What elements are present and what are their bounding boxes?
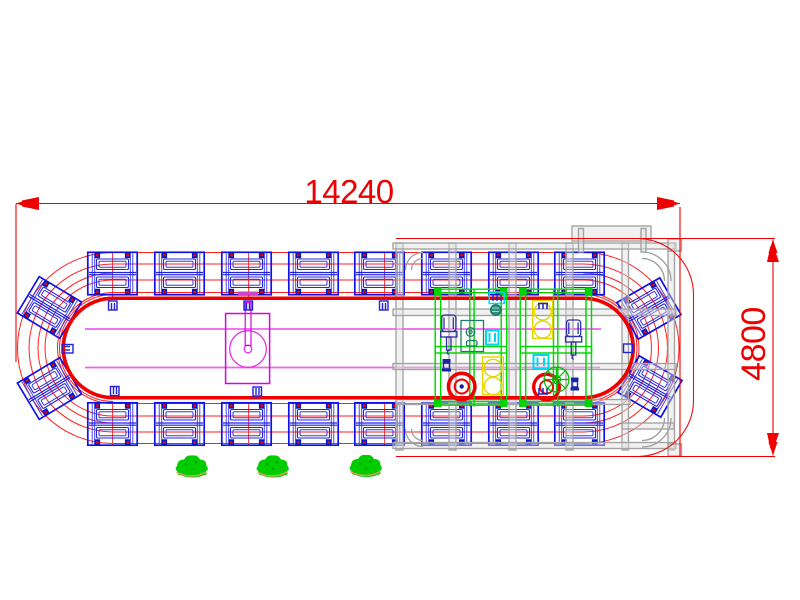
svg-text:4800: 4800 — [735, 307, 773, 381]
svg-text:14240: 14240 — [304, 173, 393, 210]
